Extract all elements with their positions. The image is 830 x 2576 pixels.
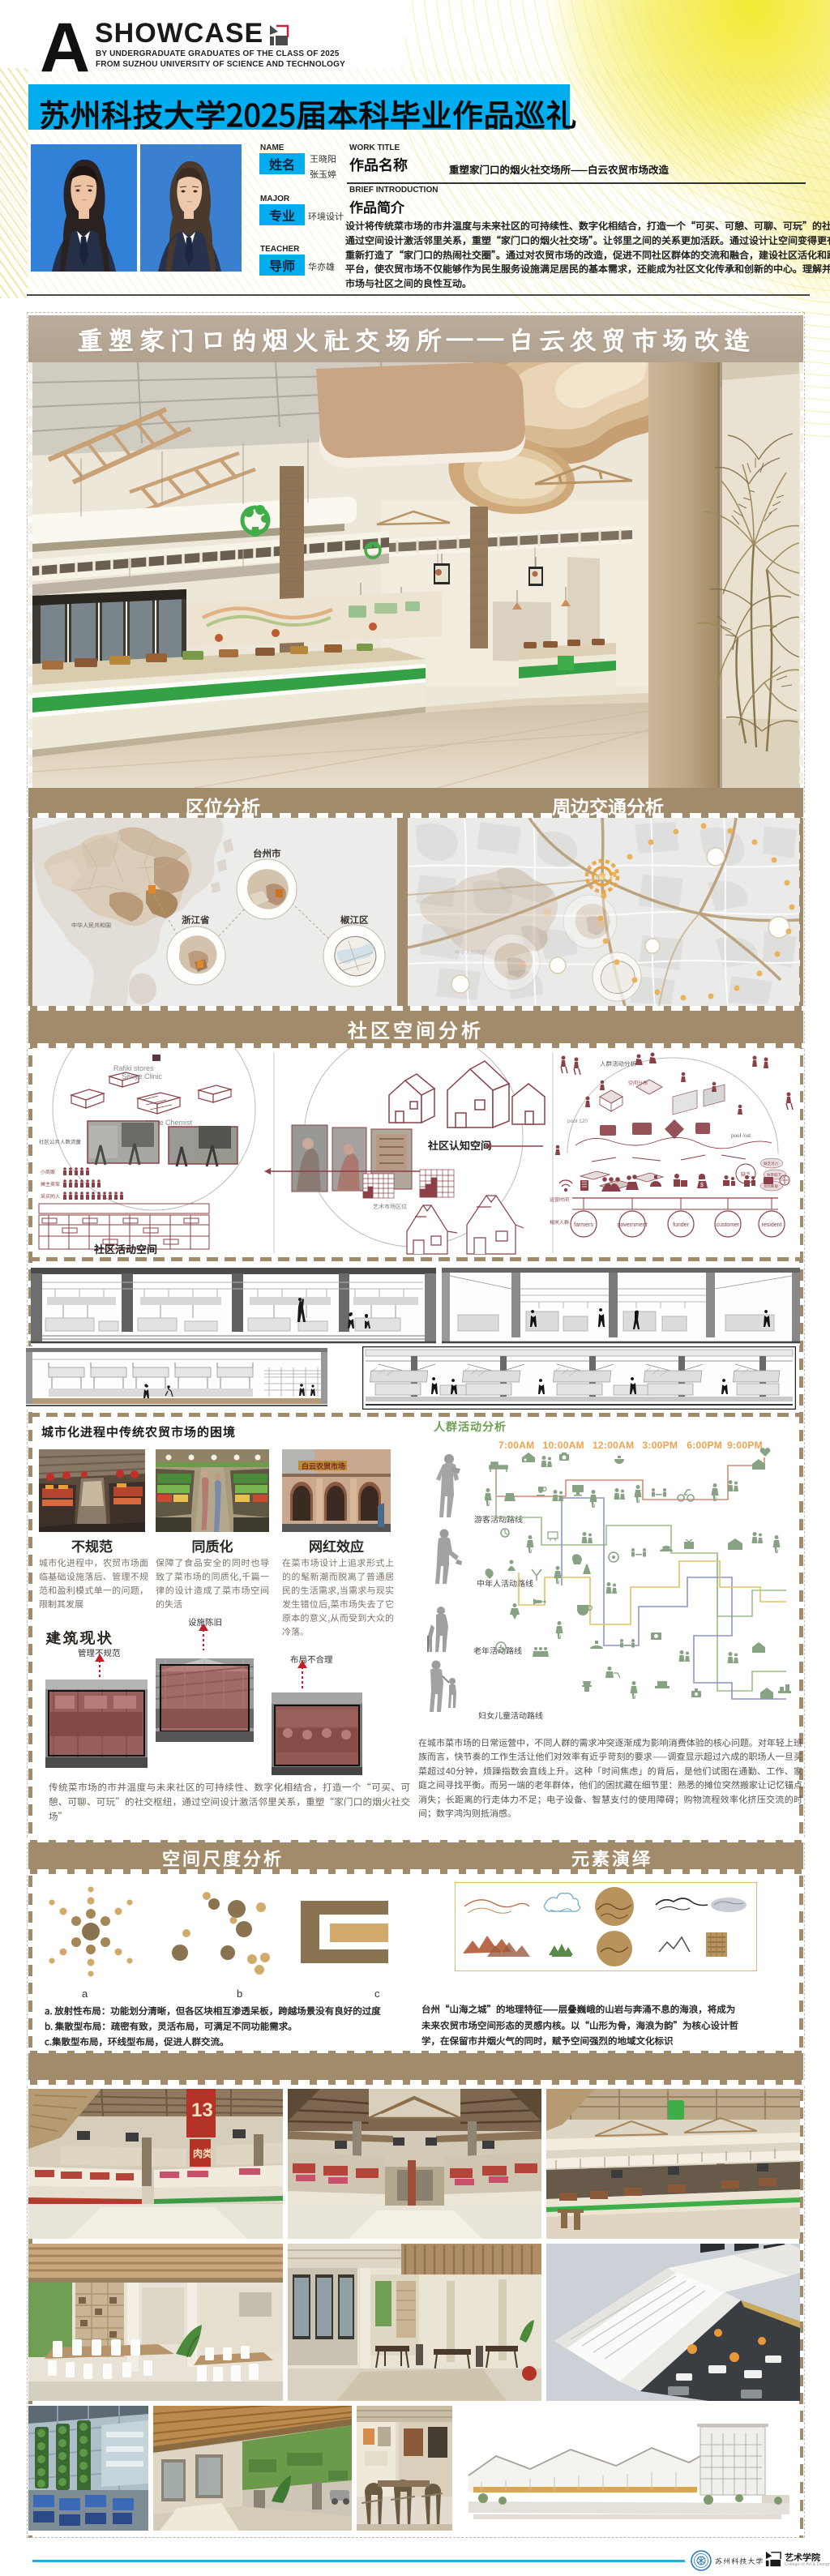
svg-text:采买的人: 采买的人 [41, 1192, 60, 1200]
svg-text:customer: customer [717, 1222, 740, 1228]
svg-text:$: $ [700, 1183, 704, 1188]
svg-text:肉类: 肉类 [193, 2146, 213, 2160]
svg-text:社区公共人数流量: 社区公共人数流量 [39, 1137, 82, 1145]
svg-text:效率低下: 效率低下 [767, 1172, 781, 1178]
svg-text:文化断层: 文化断层 [764, 1183, 778, 1189]
svg-text:Senye Clinic: Senye Clinic [122, 1072, 163, 1080]
svg-text:白云农贸市场: 白云农贸市场 [302, 1461, 345, 1471]
svg-text:Rafiki stores: Rafiki stores [113, 1064, 154, 1072]
svg-text:运营时间: 运营时间 [550, 1196, 569, 1203]
svg-text:人群活动分析: 人群活动分析 [600, 1059, 636, 1068]
svg-text:相关人群: 相关人群 [550, 1218, 569, 1226]
svg-text:government: government [618, 1222, 648, 1228]
svg-text:13: 13 [191, 2099, 213, 2121]
svg-text:白云市场: 白云市场 [593, 873, 615, 881]
svg-text:摊主卖家: 摊主卖家 [41, 1180, 60, 1187]
svg-text:funder: funder [673, 1222, 690, 1228]
svg-text:社区认知空间: 社区认知空间 [427, 1137, 491, 1153]
svg-text:社区活动空间: 社区活动空间 [93, 1241, 157, 1256]
svg-text:pool 120: pool 120 [567, 1119, 588, 1124]
svg-text:浙江省: 浙江省 [182, 914, 210, 926]
svg-text:艺术市场区位: 艺术市场区位 [373, 1203, 407, 1211]
svg-text:椒江区: 椒江区 [340, 914, 369, 926]
svg-text:缺乏活力: 缺乏活力 [764, 1161, 778, 1166]
svg-text:中华人民共和国: 中华人民共和国 [71, 922, 111, 930]
svg-text:台州市: 台州市 [253, 847, 281, 860]
svg-text:小商贩: 小商贩 [41, 1168, 55, 1175]
svg-text:resident: resident [762, 1222, 782, 1228]
svg-text:farmers: farmers [574, 1222, 593, 1228]
svg-text:pool /ost: pool /ost [731, 1132, 751, 1140]
svg-text:空间分布: 空间分布 [628, 1079, 648, 1086]
